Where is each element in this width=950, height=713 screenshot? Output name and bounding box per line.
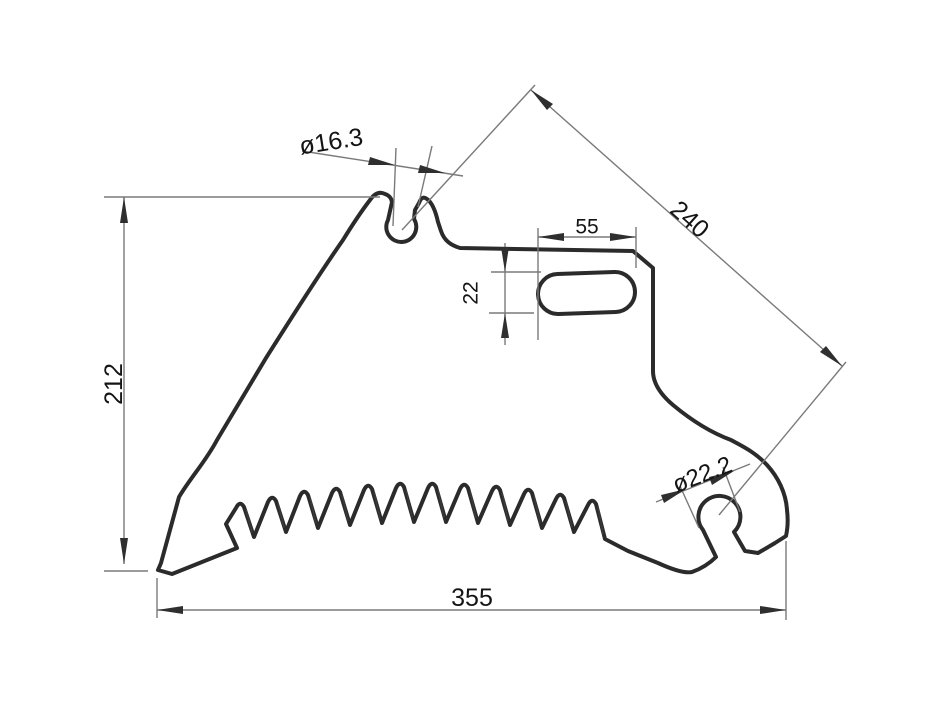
dim-240-arrow-bottom bbox=[820, 346, 842, 366]
dim-16-3-arrow-2 bbox=[418, 165, 445, 173]
dim-355-label: 355 bbox=[451, 584, 493, 612]
dim-16-3-label: ø16.3 bbox=[297, 123, 365, 161]
dim-55-label: 55 bbox=[575, 215, 598, 238]
dim-22-2: ø22.2 bbox=[656, 451, 750, 528]
dim-355: 355 bbox=[157, 541, 786, 620]
dim-355-arrow-left bbox=[157, 606, 183, 614]
dim-22-arrow-down bbox=[501, 247, 509, 272]
dim-212-arrow-down bbox=[120, 538, 128, 564]
dim-212-label: 212 bbox=[100, 363, 128, 405]
dim-16-3-arrow-1 bbox=[368, 157, 395, 165]
dim-55: 55 bbox=[538, 215, 636, 340]
dim-355-arrow-right bbox=[760, 606, 786, 614]
dim-240-ext-top bbox=[402, 85, 535, 230]
dim-212-arrow-up bbox=[120, 197, 128, 223]
dim-55-arrow-left bbox=[538, 233, 564, 241]
dim-240-label: 240 bbox=[665, 195, 715, 244]
dim-22: 22 bbox=[459, 243, 541, 345]
dim-22-2-label: ø22.2 bbox=[669, 451, 736, 498]
dim-212: 212 bbox=[100, 197, 380, 571]
dim-240-arrow-top bbox=[531, 90, 553, 110]
mounting-slot bbox=[537, 271, 635, 314]
dim-16-3: ø16.3 bbox=[297, 123, 463, 226]
dim-16-3-ext-1 bbox=[393, 148, 396, 226]
dim-22-label: 22 bbox=[459, 281, 482, 304]
dim-55-arrow-right bbox=[610, 233, 636, 241]
technical-drawing-canvas: 212 355 240 ø16.3 bbox=[0, 0, 950, 713]
blade-drawing-svg: 212 355 240 ø16.3 bbox=[0, 0, 950, 713]
dim-22-arrow-up bbox=[501, 313, 509, 338]
